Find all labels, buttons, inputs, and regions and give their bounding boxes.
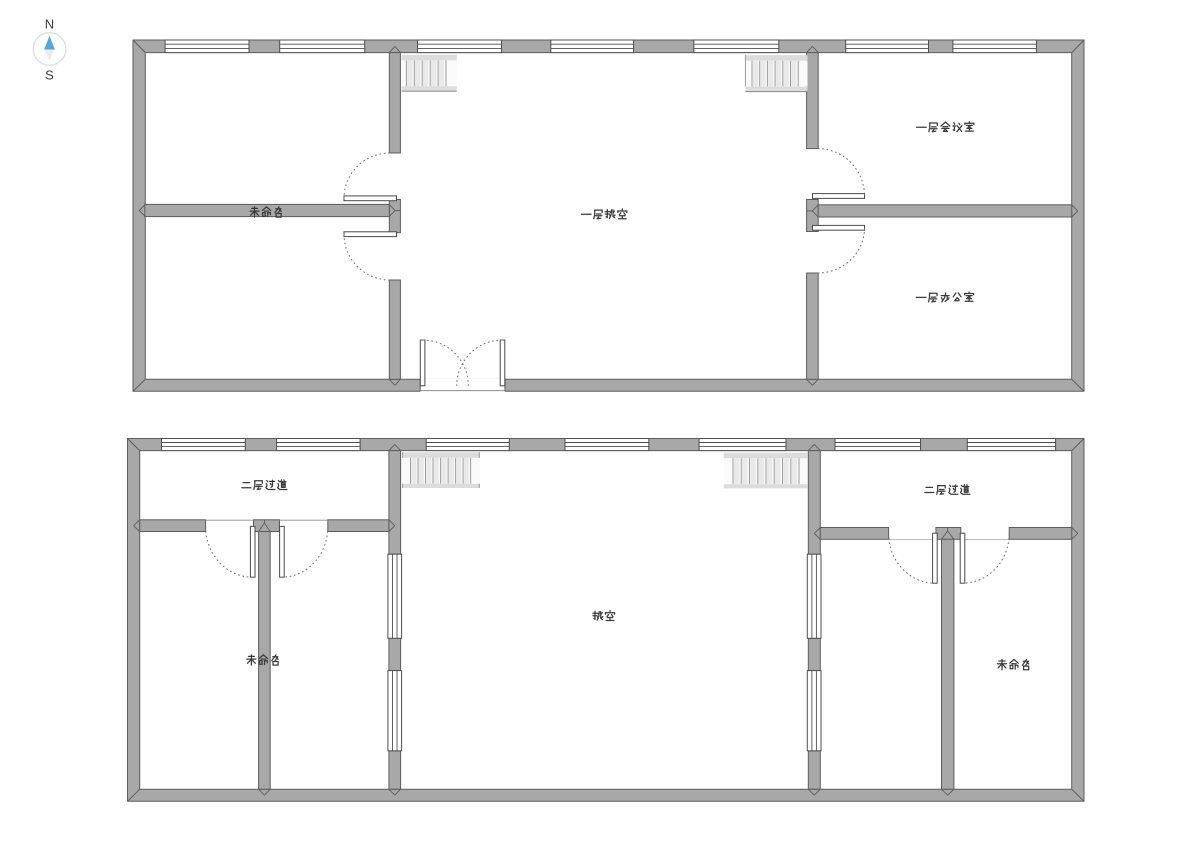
svg-text:N: N [45, 17, 54, 32]
svg-text:S: S [45, 68, 54, 83]
